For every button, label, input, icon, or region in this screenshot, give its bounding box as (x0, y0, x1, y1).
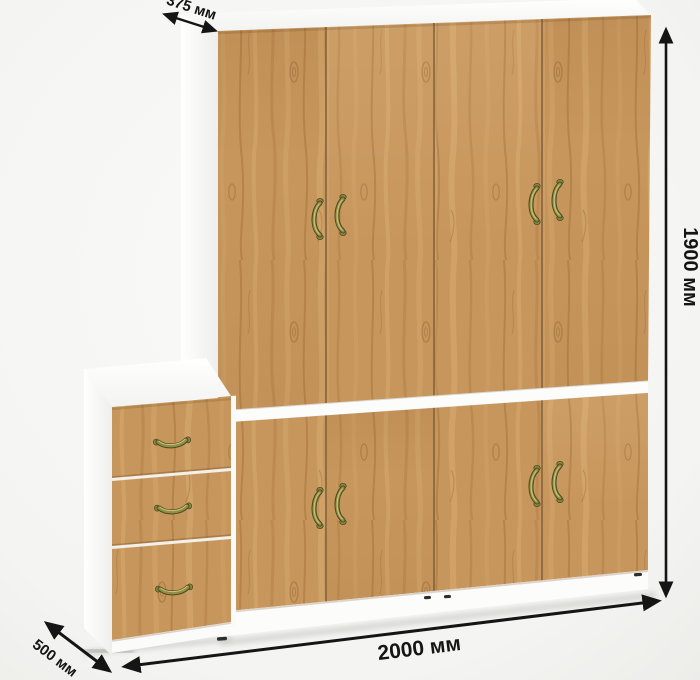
wardrobe-upper-door-3 (434, 19, 542, 396)
wardrobe (181, 0, 651, 641)
wardrobe-lower-door-2 (326, 408, 434, 602)
furniture-dimension-diagram: 375 мм 1900 мм 2000 мм 500 мм (0, 0, 700, 680)
wardrobe-upper-door-2 (326, 23, 434, 404)
wardrobe-upper-doors (218, 15, 651, 411)
wardrobe-lower-door-4 (542, 393, 648, 580)
wardrobe-upper-door-4 (542, 15, 651, 388)
height-dimension-label: 1900 мм (679, 227, 700, 307)
diagram-canvas: 375 мм 1900 мм 2000 мм 500 мм (0, 0, 700, 680)
drawer-cabinet-side (84, 369, 112, 656)
wardrobe-upper-door-1 (218, 27, 326, 411)
carcass-edge-sliver (231, 396, 236, 628)
drawer-cabinet-front (112, 397, 231, 640)
